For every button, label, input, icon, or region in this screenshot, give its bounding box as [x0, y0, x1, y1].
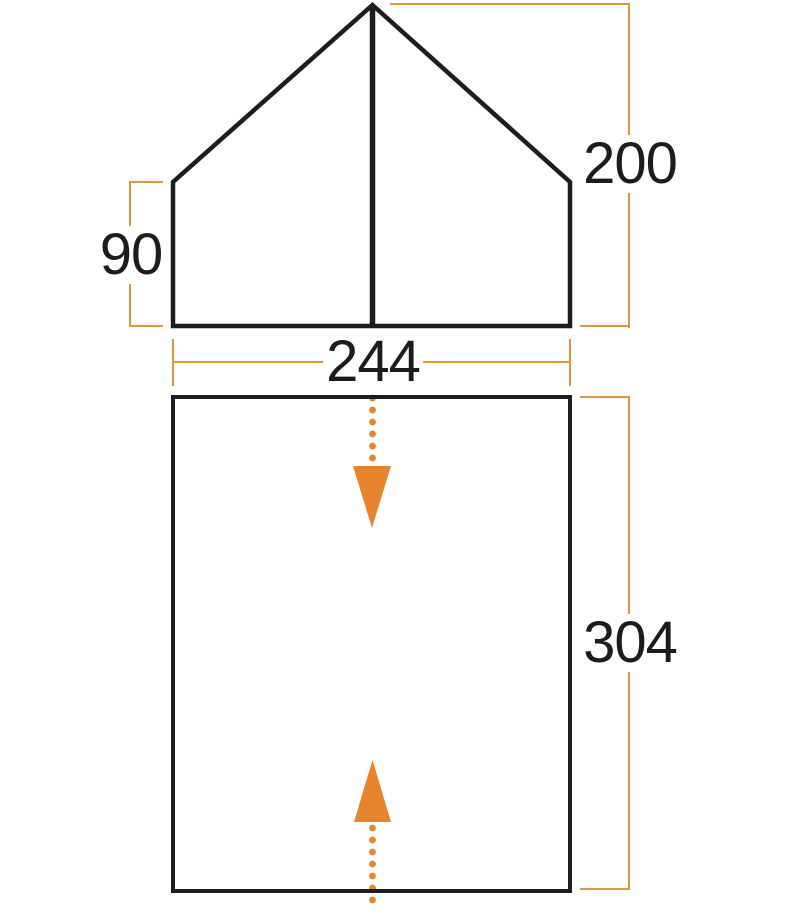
tent-dimension-diagram: 90 200 244 304	[0, 0, 800, 914]
peak-height-label: 200	[580, 135, 680, 193]
depth-label: 304	[580, 614, 680, 672]
width-label: 244	[323, 333, 423, 391]
side-wall-height-label: 90	[97, 226, 166, 284]
